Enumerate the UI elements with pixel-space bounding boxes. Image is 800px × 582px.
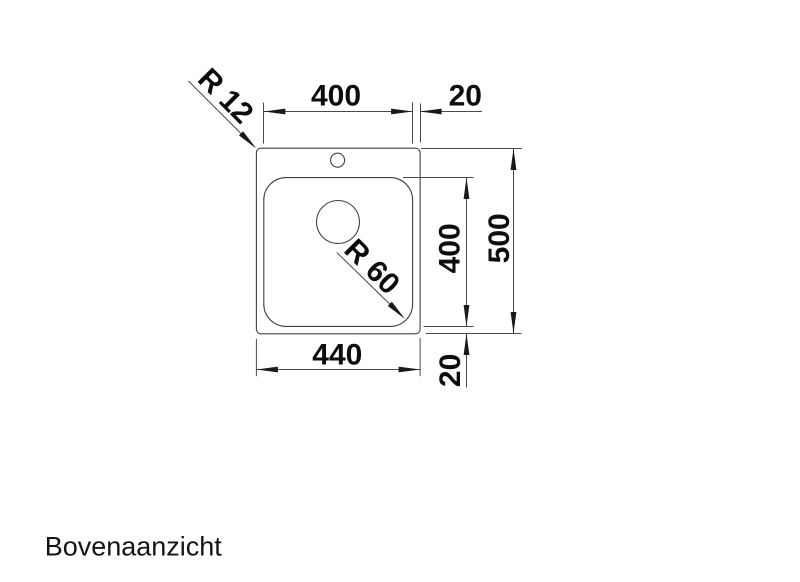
svg-text:400: 400 <box>433 223 466 273</box>
svg-text:R 60: R 60 <box>338 233 406 301</box>
svg-text:400: 400 <box>311 80 361 113</box>
svg-text:500: 500 <box>483 213 516 263</box>
svg-text:20: 20 <box>434 354 467 387</box>
svg-text:440: 440 <box>312 338 362 371</box>
svg-text:R 12: R 12 <box>191 62 259 130</box>
svg-text:Bovenaanzicht: Bovenaanzicht <box>45 532 223 562</box>
svg-text:20: 20 <box>449 80 482 113</box>
